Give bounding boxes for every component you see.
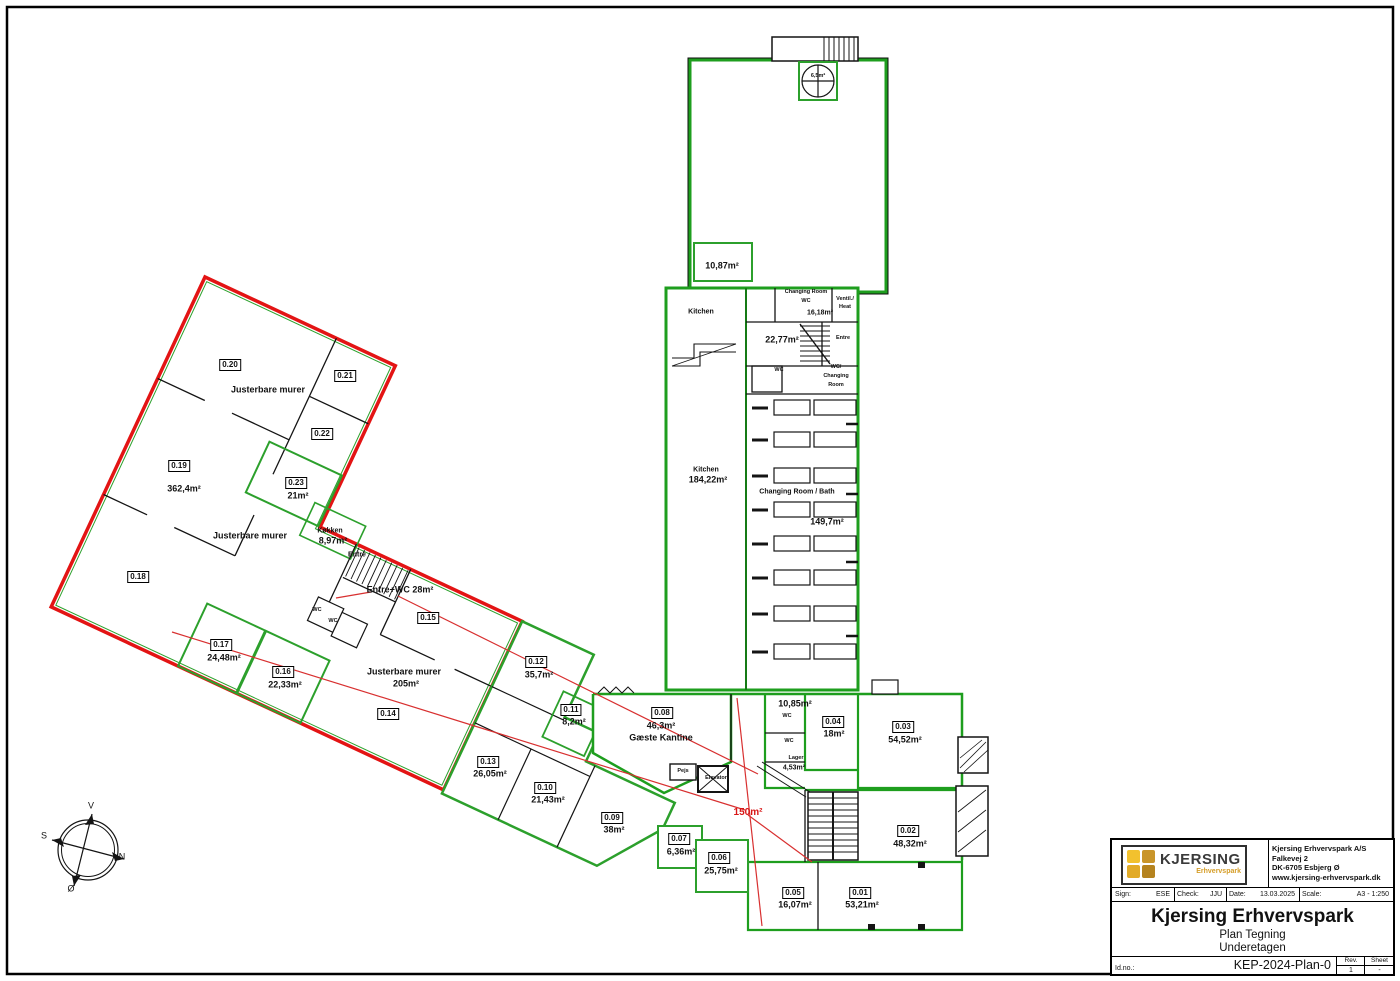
drawing-subtitle-2: Underetagen (1112, 942, 1393, 954)
sign-label: Sign: (1115, 888, 1131, 901)
company-city: DK-6705 Esbjerg Ø (1272, 863, 1381, 873)
date-cell: Date: 13.03.2025 (1226, 888, 1300, 901)
idno-value: KEP-2024-Plan-0 (1234, 958, 1331, 972)
sign-cell: Sign: ESE (1112, 888, 1175, 901)
sign-value: ESE (1156, 888, 1170, 901)
top-building (688, 37, 888, 294)
kjersing-logo: KJERSING Erhvervspark (1121, 845, 1247, 885)
rev-label: Rev. (1337, 957, 1365, 966)
scale-label: Scale: (1302, 888, 1321, 901)
company-name: Kjersing Erhvervspark A/S (1272, 844, 1381, 854)
id-row: Id.no.: KEP-2024-Plan-0 Rev. 1 Sheet - (1112, 957, 1393, 974)
scale-value: A3 - 1:250 (1357, 888, 1389, 901)
sheet-value: - (1365, 966, 1394, 975)
title-block-header: KJERSING Erhvervspark Kjersing Erhvervsp… (1112, 840, 1393, 888)
floorplan-linework (0, 0, 1400, 981)
mid-tower (666, 288, 858, 690)
logo-square-1 (1127, 850, 1140, 863)
check-label: Check: (1177, 888, 1199, 901)
title-block: KJERSING Erhvervspark Kjersing Erhvervsp… (1110, 838, 1395, 976)
scale-cell: Scale: A3 - 1:250 (1299, 888, 1393, 901)
logo-text: KJERSING (1160, 851, 1241, 868)
logo-square-4 (1142, 865, 1155, 878)
company-street: Falkevej 2 (1272, 854, 1381, 864)
company-website: www.kjersing-erhvervspark.dk (1272, 873, 1381, 883)
drawing-title: Kjersing Erhvervspark (1112, 906, 1393, 928)
drawing-subtitle-1: Plan Tegning (1112, 929, 1393, 941)
company-address: Kjersing Erhvervspark A/S Falkevej 2 DK-… (1272, 844, 1381, 882)
rev-cell: Rev. 1 (1336, 957, 1365, 974)
compass-rose (52, 814, 124, 886)
date-value: 13.03.2025 (1260, 888, 1295, 901)
logo-square-3 (1127, 865, 1140, 878)
logo-cell: KJERSING Erhvervspark (1112, 840, 1269, 887)
rev-value: 1 (1337, 966, 1365, 975)
meta-row: Sign: ESE Check: JJU Date: 13.03.2025 Sc… (1112, 888, 1393, 902)
logo-square-2 (1142, 850, 1155, 863)
sheet-cell: Sheet - (1364, 957, 1394, 974)
idno-label: Id.no.: (1115, 965, 1134, 972)
date-label: Date: (1229, 888, 1246, 901)
check-cell: Check: JJU (1174, 888, 1227, 901)
sheet-label: Sheet (1365, 957, 1394, 966)
check-value: JJU (1210, 888, 1222, 901)
drawing-title-area: Kjersing Erhvervspark Plan Tegning Under… (1112, 902, 1393, 957)
drawing-sheet: 0.200.210.220.2321m²0.19362,4m²0.180.172… (0, 0, 1400, 981)
logo-subtext: Erhvervspark (1167, 868, 1241, 875)
